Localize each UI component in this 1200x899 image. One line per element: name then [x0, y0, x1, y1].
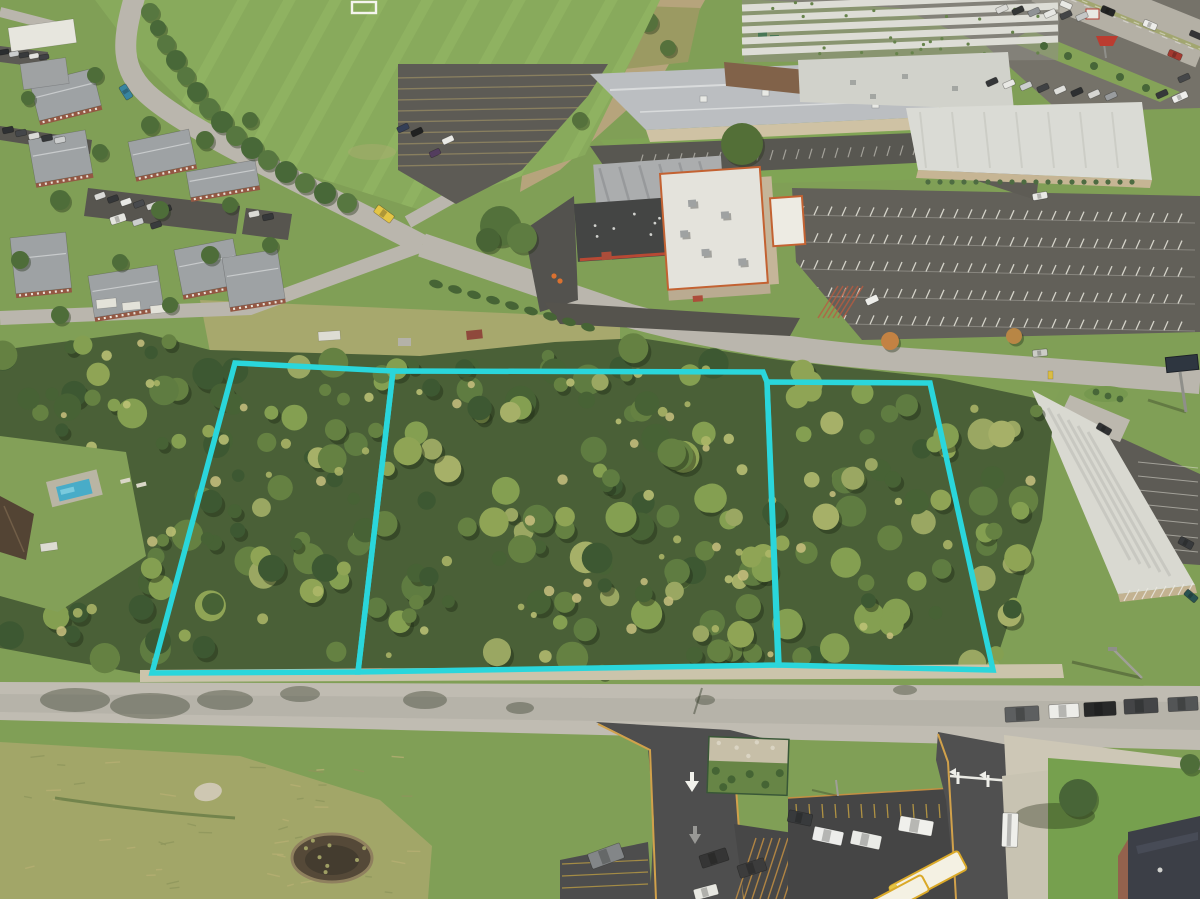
aerial-photo-viewport — [0, 0, 1200, 899]
sun-glare — [0, 0, 1200, 899]
sunlight-overlay — [0, 0, 1200, 899]
aerial-photo — [0, 0, 1200, 899]
